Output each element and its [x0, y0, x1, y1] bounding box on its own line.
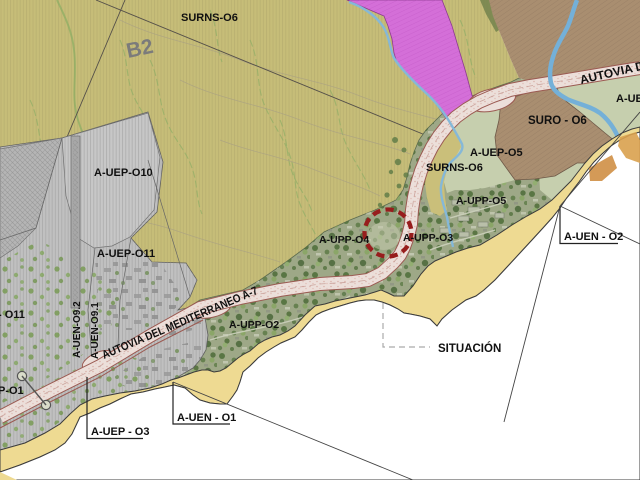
- svg-text:SURO - O6: SURO - O6: [528, 115, 587, 127]
- svg-text:A-UEP-O5: A-UEP-O5: [470, 147, 523, 159]
- svg-text:A-UPP-O4: A-UPP-O4: [319, 234, 369, 246]
- svg-text:P-O1: P-O1: [0, 385, 24, 397]
- svg-text:- O11: - O11: [0, 309, 25, 321]
- svg-text:A-UEP - O3: A-UEP - O3: [91, 426, 149, 438]
- svg-text:A-UPP-O5: A-UPP-O5: [456, 195, 506, 207]
- svg-text:A-UEN: A-UEN: [616, 93, 640, 105]
- svg-text:SURNS-O6: SURNS-O6: [181, 12, 238, 24]
- svg-text:A-UPP-O3: A-UPP-O3: [403, 232, 453, 244]
- svg-text:A-UEN - O1: A-UEN - O1: [177, 412, 236, 424]
- svg-text:SURNS-O6: SURNS-O6: [426, 162, 483, 174]
- svg-text:A-UEN - O2: A-UEN - O2: [564, 231, 623, 243]
- svg-text:A-UEN-O9.2: A-UEN-O9.2: [72, 301, 83, 358]
- svg-text:SITUACIÓN: SITUACIÓN: [438, 342, 501, 355]
- svg-text:A-UEP-O11: A-UEP-O11: [97, 248, 155, 260]
- svg-text:A-UPP-O2: A-UPP-O2: [229, 319, 279, 331]
- svg-text:A-UEP-O10: A-UEP-O10: [94, 167, 153, 179]
